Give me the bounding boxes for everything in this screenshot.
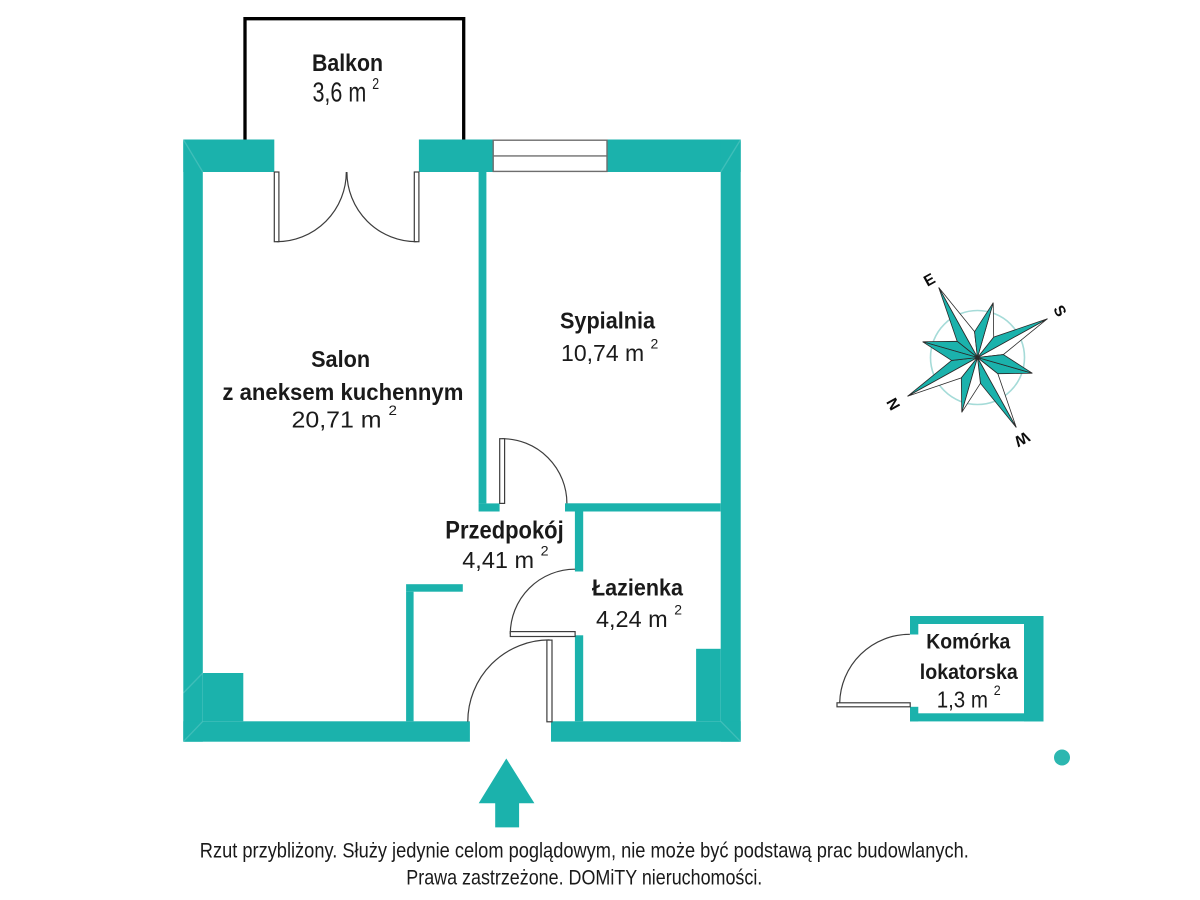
svg-text:Komórka: Komórka [926,630,1011,654]
svg-text:Rzut przybliżony. Służy jedyni: Rzut przybliżony. Służy jedynie celom po… [200,840,969,863]
svg-text:E: E [921,271,938,291]
svg-text:20,71 m 2: 20,71 m 2 [292,402,398,433]
svg-text:4,24 m 2: 4,24 m 2 [596,602,682,633]
svg-text:Salon: Salon [311,346,370,372]
svg-text:Łazienka: Łazienka [592,575,684,601]
svg-text:Sypialnia: Sypialnia [560,307,656,333]
svg-text:10,74 m 2: 10,74 m 2 [561,335,659,366]
svg-text:lokatorska: lokatorska [920,660,1019,684]
svg-text:3,6 m 2: 3,6 m 2 [312,76,379,108]
svg-text:z aneksem kuchennym: z aneksem kuchennym [222,379,463,405]
svg-text:W: W [1011,428,1032,450]
svg-text:S: S [1049,303,1069,320]
svg-text:Balkon: Balkon [312,50,383,77]
svg-text:Prawa zastrzeżone. DOMiTY nier: Prawa zastrzeżone. DOMiTY nieruchomości. [406,867,762,890]
svg-text:1,3 m 2: 1,3 m 2 [937,682,1001,713]
svg-text:4,41 m 2: 4,41 m 2 [462,543,549,574]
svg-text:Przedpokój: Przedpokój [445,516,563,544]
svg-text:N: N [884,395,904,413]
